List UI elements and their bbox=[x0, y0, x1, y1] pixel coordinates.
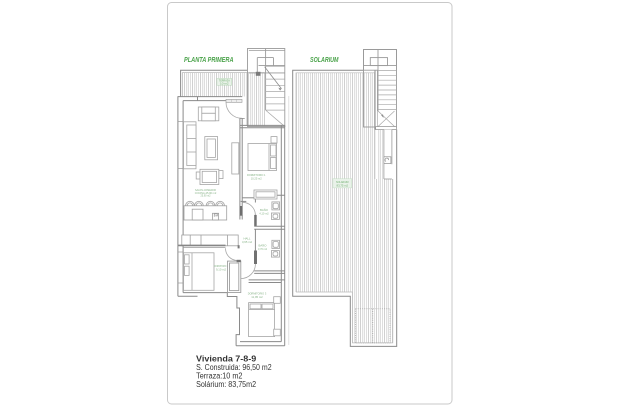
svg-text:PLANTA PRIMERA: PLANTA PRIMERA bbox=[184, 55, 234, 64]
svg-text:DORMITORIO 1: DORMITORIO 1 bbox=[247, 173, 266, 177]
svg-text:11,95 m2: 11,95 m2 bbox=[251, 295, 263, 299]
svg-text:4,10 m2: 4,10 m2 bbox=[259, 212, 269, 216]
svg-text:10 m2: 10 m2 bbox=[220, 82, 229, 86]
svg-text:DORMITORIO 3: DORMITORIO 3 bbox=[248, 292, 267, 296]
svg-text:10,25 m2: 10,25 m2 bbox=[251, 177, 262, 181]
svg-text:3,70 m2: 3,70 m2 bbox=[258, 247, 267, 251]
svg-text:SOLARIUM: SOLARIUM bbox=[310, 55, 339, 64]
svg-text:3,95 m2: 3,95 m2 bbox=[242, 240, 253, 244]
svg-text:DORMITORIO 2: DORMITORIO 2 bbox=[214, 264, 228, 268]
svg-text:Vivienda 7-8-9: Vivienda 7-8-9 bbox=[196, 353, 257, 363]
svg-text:SOLARIUM: SOLARIUM bbox=[336, 180, 349, 184]
svg-text:25,90 m2: 25,90 m2 bbox=[201, 194, 211, 198]
svg-text:83,75 m2: 83,75 m2 bbox=[337, 183, 349, 187]
svg-text:9,10 m2: 9,10 m2 bbox=[216, 267, 227, 271]
svg-text:HALL: HALL bbox=[244, 237, 252, 241]
svg-text:Solárium: 83,75m2: Solárium: 83,75m2 bbox=[196, 380, 256, 389]
